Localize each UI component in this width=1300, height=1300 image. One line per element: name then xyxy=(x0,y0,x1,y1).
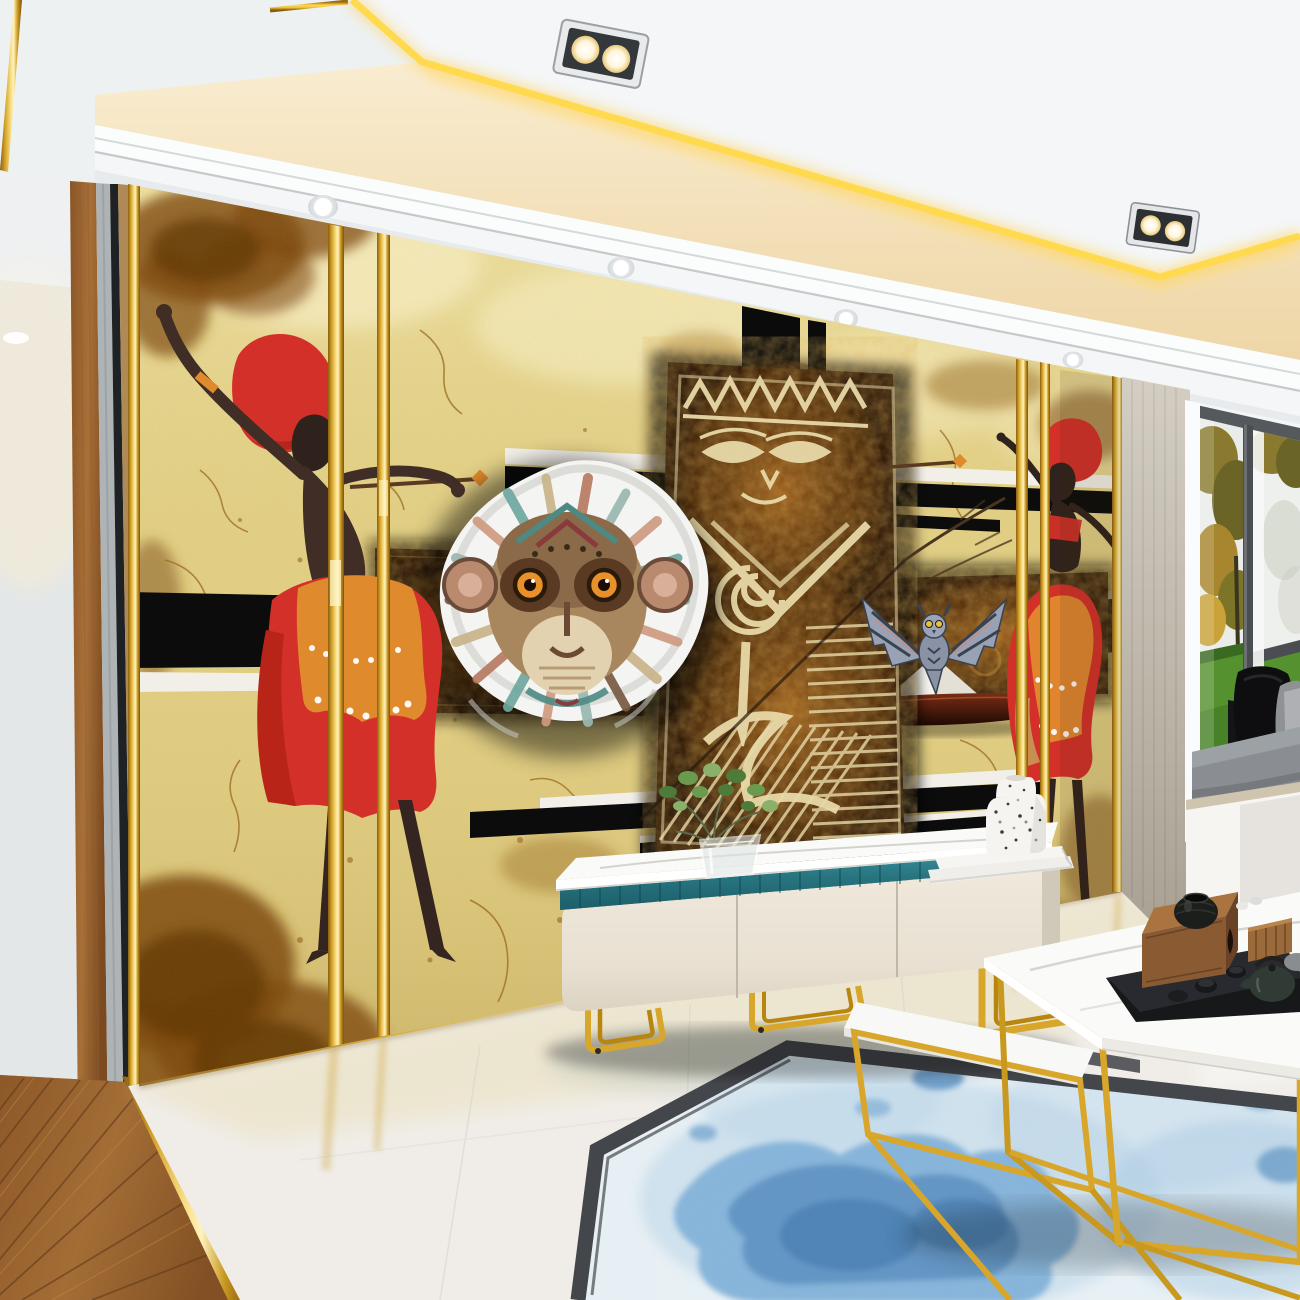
hallway-downlight xyxy=(3,332,29,344)
ceiling-spotlight-duo-2 xyxy=(1126,202,1200,253)
living-room-render xyxy=(0,0,1300,1300)
tribal-monkey-medallion xyxy=(415,458,719,758)
scene-canvas xyxy=(0,0,1300,1300)
wall-edge-shadow xyxy=(1060,370,1122,905)
